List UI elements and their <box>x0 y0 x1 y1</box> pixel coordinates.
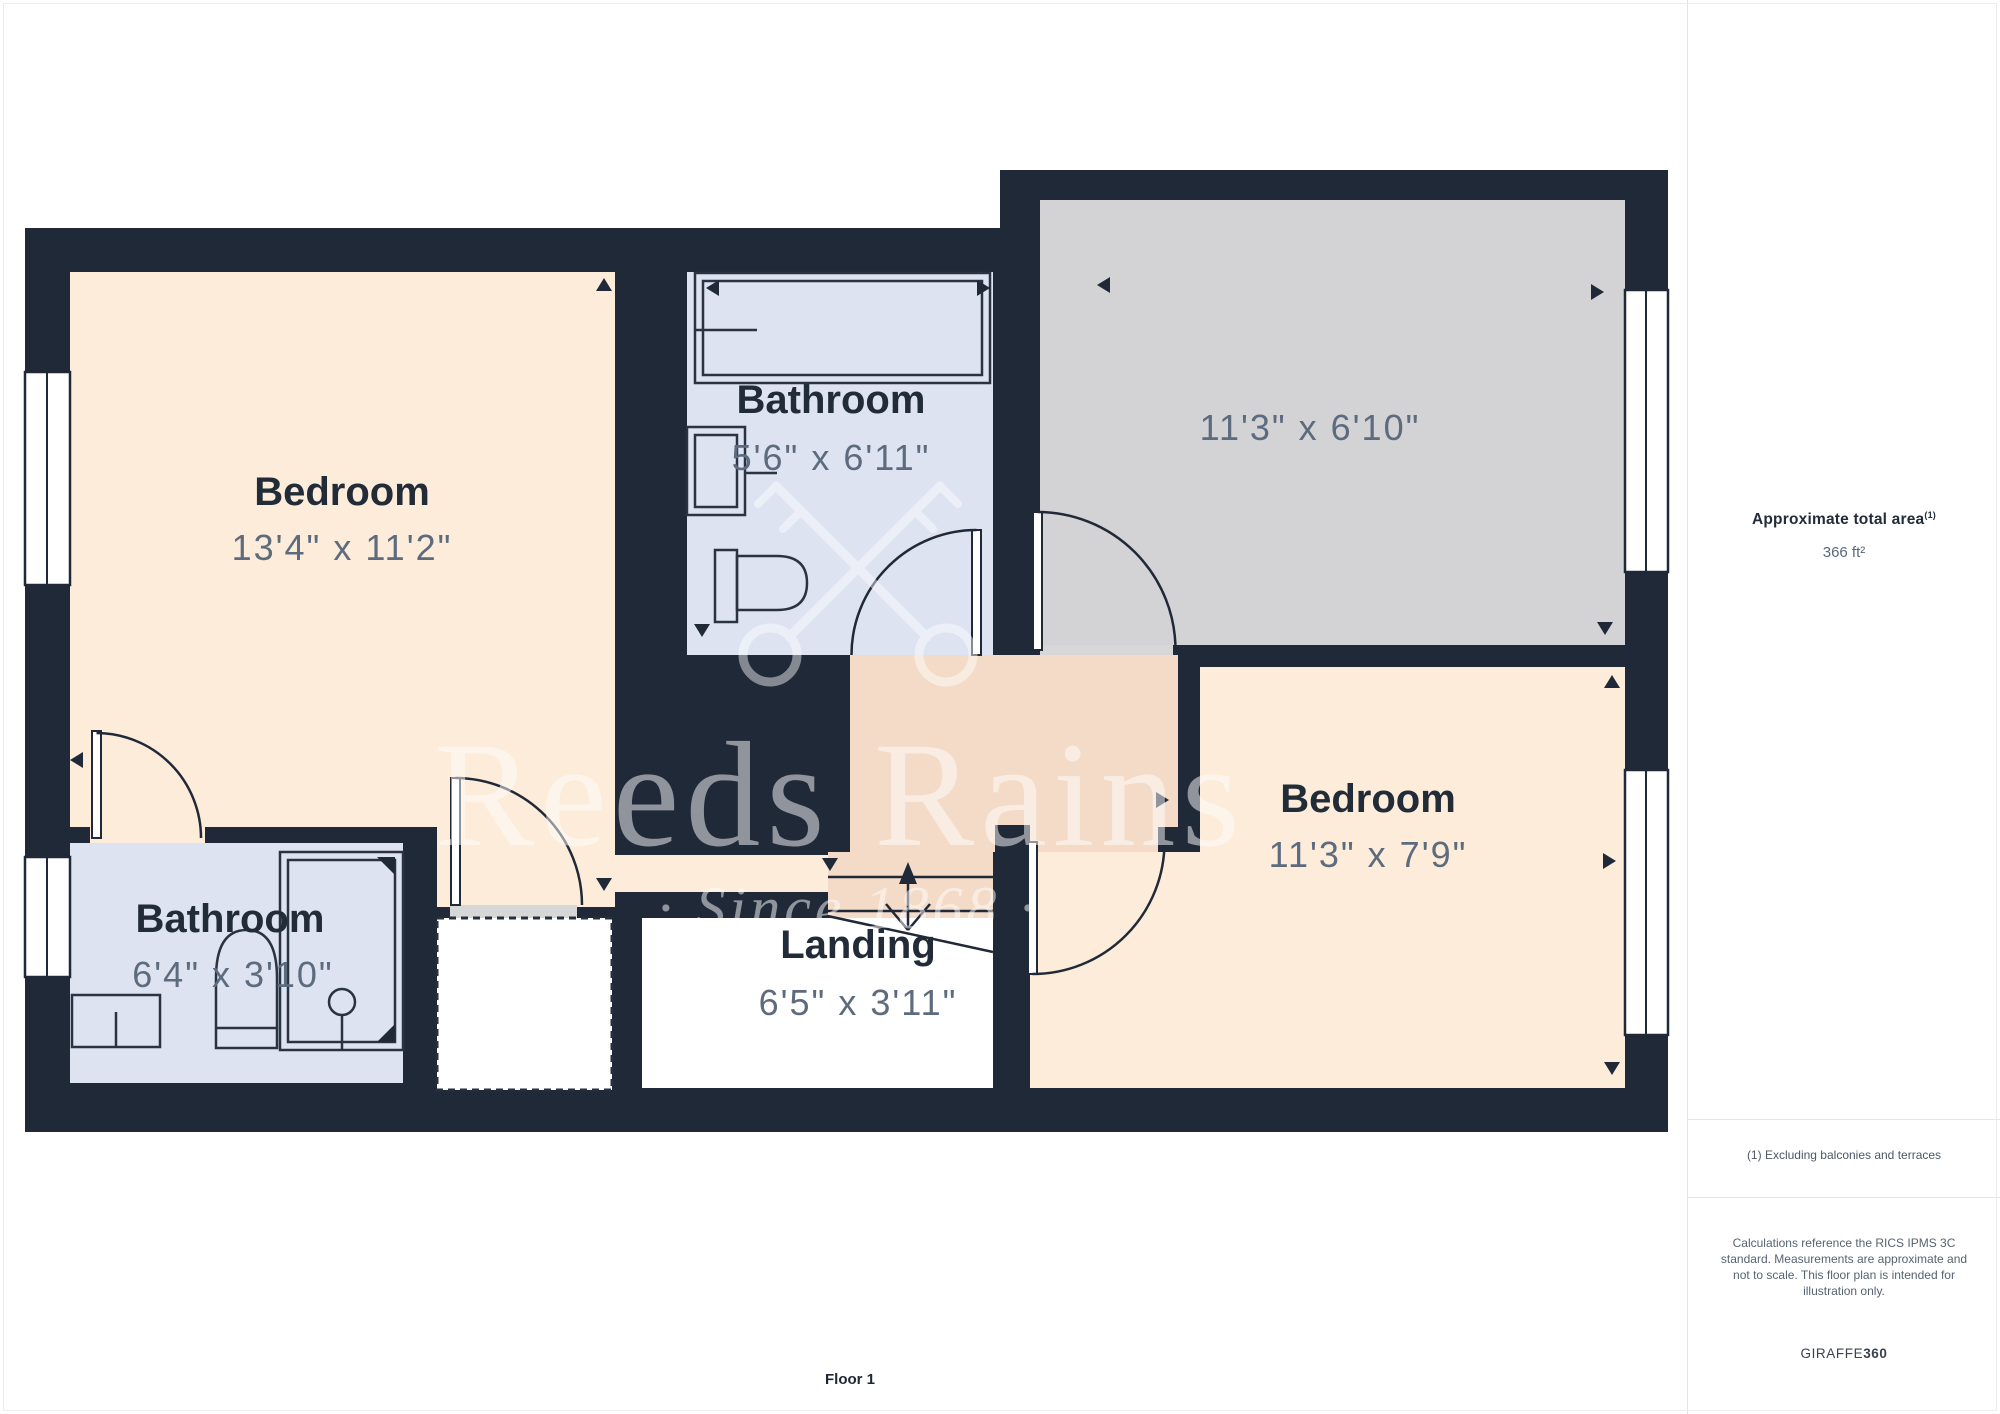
giraffe360-logo-regular: GIRAFFE <box>1800 1346 1863 1361</box>
total-area-title: Approximate total area(1) <box>1688 510 2000 529</box>
sidebar-divider <box>1688 1119 2000 1120</box>
watermark-tagline-text: · Since 1868 · <box>658 875 1039 941</box>
room-dims-label: 5'6" x 6'11" <box>732 437 931 478</box>
footnote-marker: (1) <box>1924 510 1936 520</box>
door-leaf-bathroom-1 <box>972 530 981 655</box>
sidebar-divider <box>1688 1197 2000 1198</box>
footnote-text: (1) Excluding balconies and terraces <box>1688 1148 2000 1162</box>
room-name-label: Bathroom <box>136 897 325 941</box>
giraffe360-logo-bold: 360 <box>1863 1346 1887 1361</box>
watermark-brand-text: Reeds Rains <box>434 712 1246 878</box>
room-name-label: Bathroom <box>737 378 926 422</box>
room-bedroom-2 <box>1200 667 1625 1088</box>
giraffe360-logo: GIRAFFE360 <box>1688 1346 2000 1361</box>
threshold-bedroom-1 <box>450 905 577 918</box>
total-area-value: 366 ft² <box>1688 544 2000 561</box>
room-dims-label: 11'3" x 7'9" <box>1269 834 1468 875</box>
room-name-label: Bedroom <box>254 470 430 514</box>
room-dims-label: 6'4" x 3'10" <box>132 954 333 995</box>
info-sidebar: Approximate total area(1) 366 ft² (1) Ex… <box>1687 0 2000 1414</box>
floor-label: Floor 1 <box>760 1371 940 1388</box>
room-name-label: Bedroom <box>1280 777 1456 821</box>
floorplan-page: Bedroom 13'4" x 11'2" Bathroom 5'6" x 6'… <box>0 0 2000 1414</box>
room-dims-label: 6'5" x 3'11" <box>759 982 958 1023</box>
total-area-block: Approximate total area(1) 366 ft² <box>1688 510 2000 561</box>
room-dims-label: 11'3" x 6'10" <box>1200 407 1421 448</box>
room-bedroom-2-entry <box>1030 852 1200 1088</box>
threshold-gray-room <box>1040 645 1173 655</box>
storage-cupboard <box>437 918 612 1090</box>
door-opening-ensuite <box>90 827 205 844</box>
total-area-title-text: Approximate total area <box>1752 511 1924 528</box>
door-leaf-gray-room <box>1033 512 1042 650</box>
door-leaf-ensuite <box>92 731 101 838</box>
disclaimer-text: Calculations reference the RICS IPMS 3C … <box>1719 1236 1969 1300</box>
room-dims-label: 13'4" x 11'2" <box>232 527 453 568</box>
